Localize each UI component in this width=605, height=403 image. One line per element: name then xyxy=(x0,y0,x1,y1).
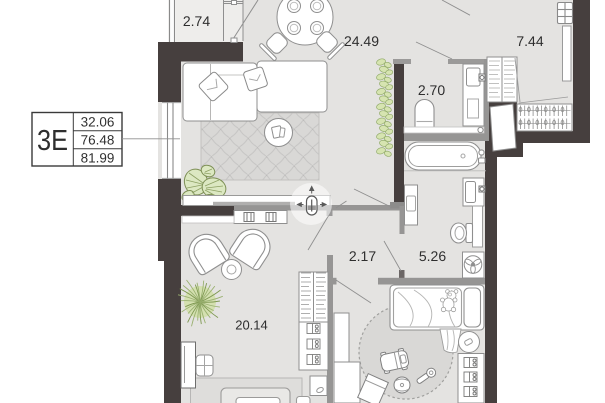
svg-text:24.49: 24.49 xyxy=(344,33,379,49)
svg-text:3Е: 3Е xyxy=(37,125,68,157)
svg-text:5.26: 5.26 xyxy=(419,248,446,264)
svg-text:76.48: 76.48 xyxy=(81,133,115,148)
svg-text:20.14: 20.14 xyxy=(235,318,268,333)
svg-text:81.99: 81.99 xyxy=(81,151,115,166)
svg-text:32.06: 32.06 xyxy=(81,115,115,130)
svg-text:2.17: 2.17 xyxy=(349,248,376,264)
svg-text:2.70: 2.70 xyxy=(418,82,445,98)
svg-text:7.44: 7.44 xyxy=(516,33,543,49)
svg-text:2.74: 2.74 xyxy=(183,13,210,29)
